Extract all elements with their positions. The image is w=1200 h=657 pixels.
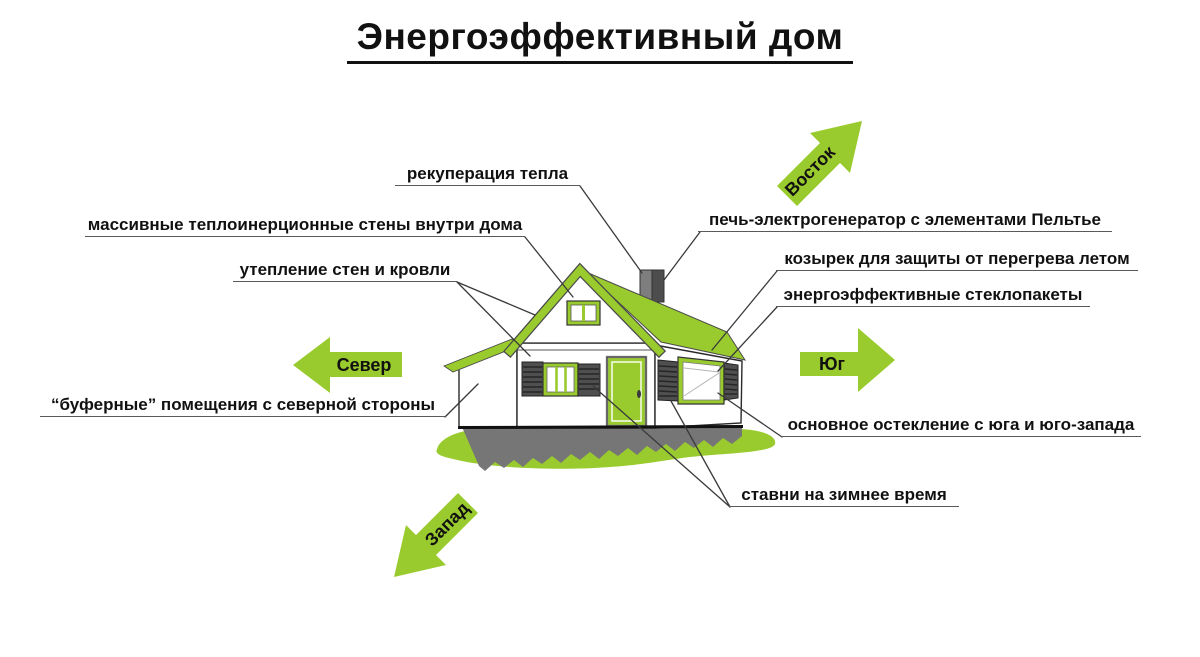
diagram-canvas: Восток Север Юг Запад Энергоэффективный … [0, 0, 1200, 657]
label-buffer-rooms: “буферные” помещения с северной стороны [40, 395, 446, 417]
left-window-left-shutter [522, 362, 543, 396]
label-canopy: козырек для защиты от перегрева летом [776, 249, 1138, 271]
leader-insulation-roof [457, 282, 535, 315]
arrow-south-label: Юг [819, 354, 846, 374]
page-title: Энергоэффективный дом [347, 16, 854, 64]
arrow-west: Запад [394, 493, 478, 577]
label-winter-shutters: ставни на зимнее время [729, 485, 959, 507]
right-window-right-shutter [724, 363, 738, 400]
house-diagram-graphic: Восток Север Юг Запад [0, 0, 1200, 657]
label-heat-recuperation: рекуперация тепла [395, 164, 580, 186]
leader-canopy [712, 271, 777, 350]
left-window [543, 363, 578, 396]
title-wrap: Энергоэффективный дом [0, 16, 1200, 64]
label-main-glazing: основное остекление с юга и юго-запада [781, 415, 1141, 437]
leader-stove [664, 232, 700, 280]
leader-recuperation [580, 186, 642, 273]
label-massive-walls: массивные теплоинерционные стены внутри … [85, 215, 525, 237]
label-insulation: утепление стен и кровли [233, 260, 457, 282]
arrow-east: Восток [777, 121, 862, 206]
arrow-north: Север [293, 337, 402, 393]
right-window [678, 357, 724, 404]
label-glazing-units: энергоэффективные стеклопакеты [776, 285, 1090, 307]
right-window-left-shutter [658, 360, 678, 401]
house-baseline [458, 427, 743, 428]
leader-massive-walls [525, 237, 573, 297]
left-window-right-shutter [578, 364, 600, 396]
door-handle [637, 390, 641, 398]
leader-insulation-wall [457, 282, 530, 356]
label-peltier-stove: печь-электрогенератор с элементами Пельт… [698, 210, 1112, 232]
arrow-south: Юг [800, 328, 895, 392]
arrow-north-label: Север [337, 355, 392, 375]
attic-window [567, 301, 600, 325]
